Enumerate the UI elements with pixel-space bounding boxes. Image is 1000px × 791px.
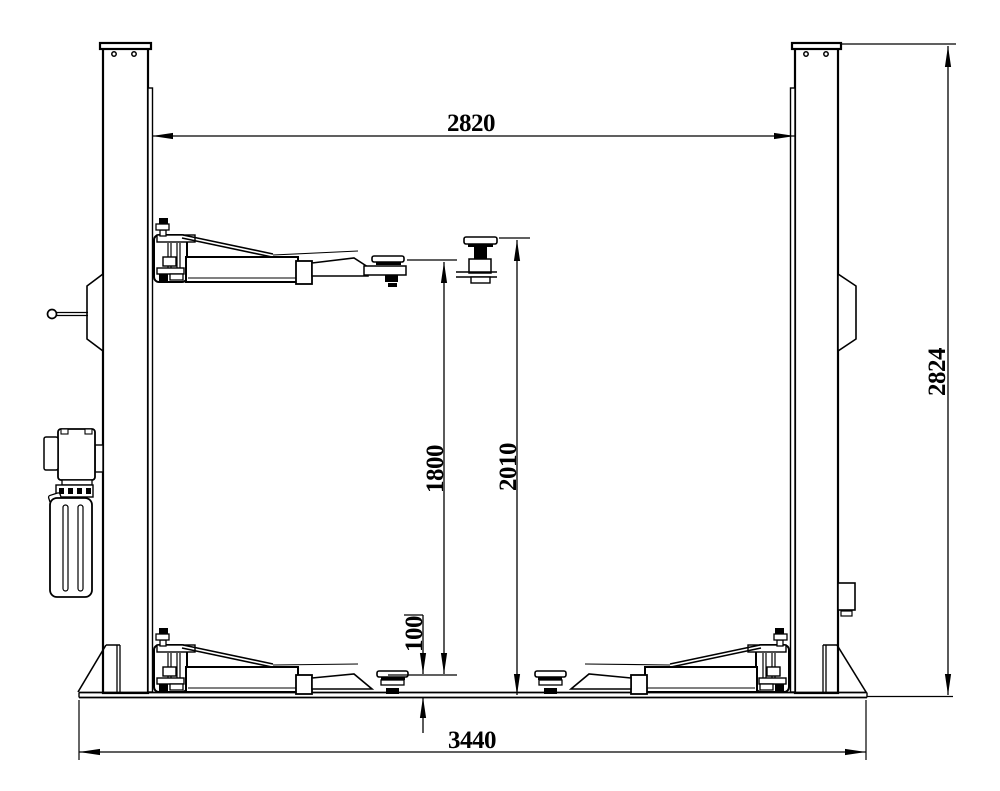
oil-tank — [50, 498, 92, 597]
technical-drawing-canvas: 2820 2824 1800 2010 100 3440 — [0, 0, 1000, 791]
screw-pad-adapter — [456, 237, 497, 283]
dim-label-3440: 3440 — [448, 727, 496, 754]
adapter-foot — [471, 277, 490, 283]
right-post — [791, 43, 857, 693]
right-post-slide-channel — [791, 88, 796, 692]
dim-label-1800: 1800 — [422, 445, 449, 493]
dim-label-100: 100 — [401, 616, 428, 652]
arm-end-bracket — [364, 266, 406, 275]
bolt-hole — [132, 52, 136, 56]
adapter-body — [469, 259, 491, 273]
lift-pad — [372, 256, 404, 262]
capacitor-box — [44, 437, 58, 470]
mount-bracket — [95, 445, 103, 472]
lowering-handle — [48, 310, 89, 319]
right-post-top-cap — [792, 43, 841, 49]
motor — [58, 429, 95, 480]
adapter-screw — [474, 247, 487, 259]
raised-arm-left — [154, 218, 406, 287]
right-post-side-cover — [838, 274, 856, 351]
left-post-side-cover — [87, 274, 103, 351]
left-post-body — [103, 48, 148, 693]
dim-label-2824: 2824 — [924, 347, 951, 396]
left-post-top-cap — [100, 43, 151, 49]
junction-box — [838, 583, 855, 610]
bolt-hole — [824, 52, 828, 56]
lowered-arm-left — [154, 628, 408, 694]
adapter-cap — [464, 237, 497, 244]
bolt-hole — [804, 52, 808, 56]
dim-label-2820: 2820 — [447, 110, 495, 137]
lift-drawing: 2820 2824 1800 2010 100 3440 — [0, 0, 1000, 791]
lowered-arm-right — [535, 628, 789, 694]
right-post-body — [795, 48, 838, 693]
dim-label-2010: 2010 — [495, 443, 522, 491]
coupling — [62, 480, 92, 485]
left-post-slide-channel — [148, 88, 153, 692]
junction-box-detail — [841, 611, 852, 616]
bolt-hole — [112, 52, 116, 56]
hydraulic-power-unit — [44, 429, 103, 597]
